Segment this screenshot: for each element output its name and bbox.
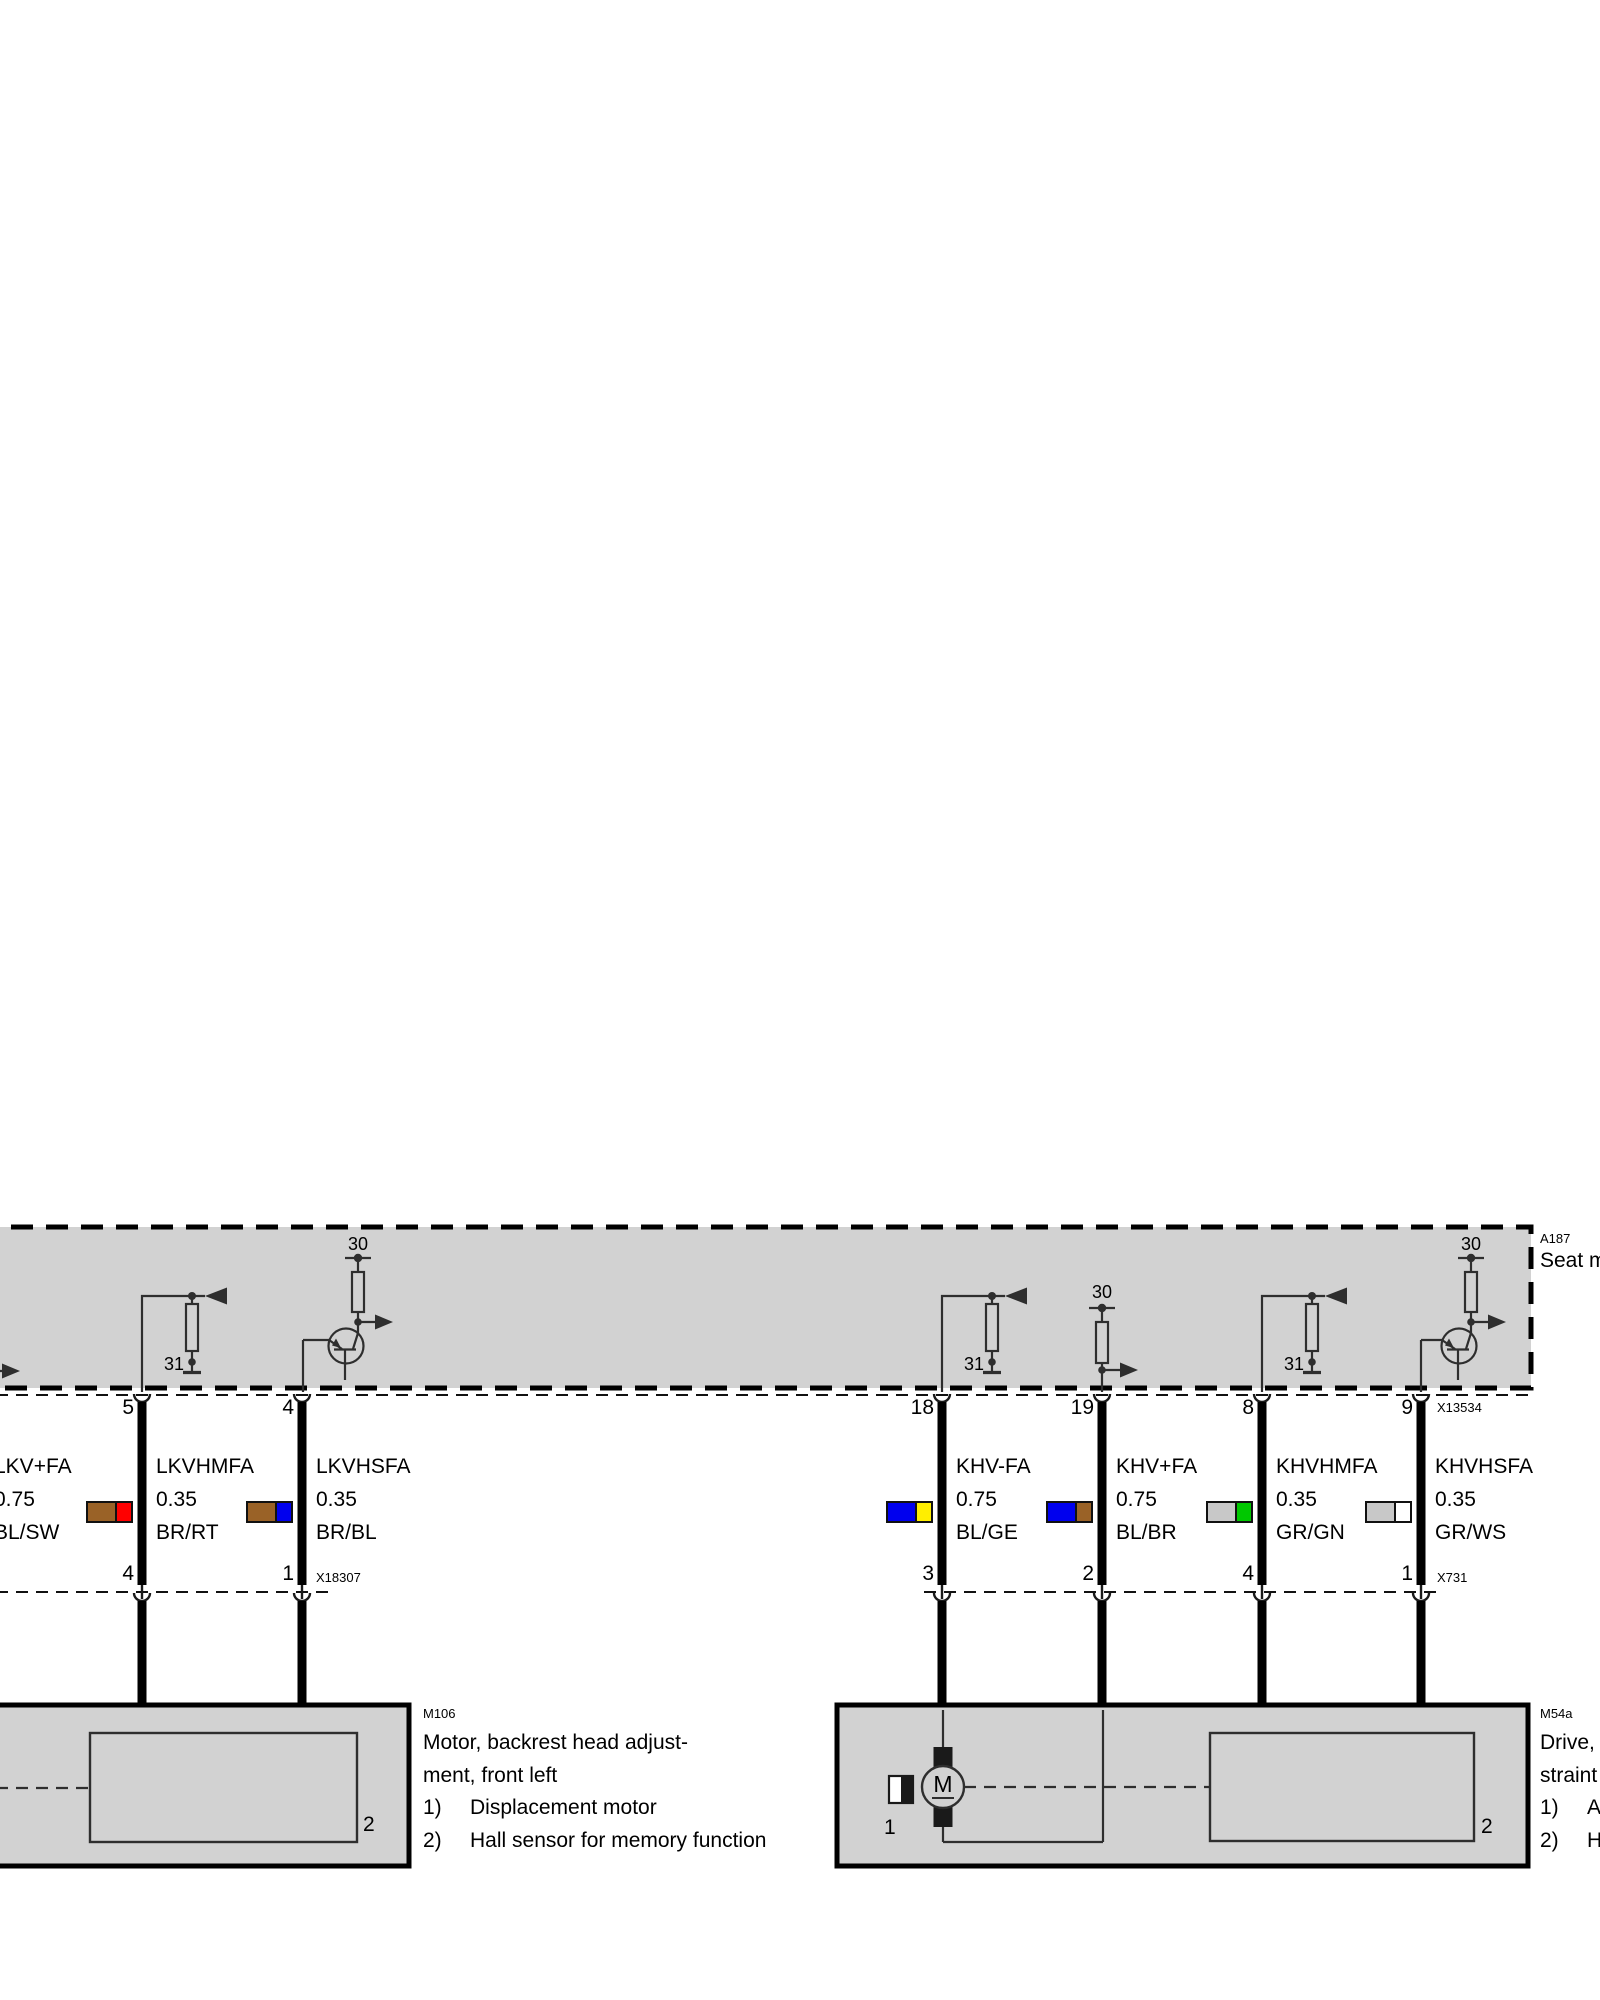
diagram-linework (0, 0, 1600, 2000)
module-code: A187 (1540, 1231, 1570, 1246)
pin-number-top: 18 (892, 1396, 934, 1420)
m54a-item-1: 1)Ad (1540, 1792, 1600, 1825)
m106-item-1: 1)Displacement motor (423, 1792, 766, 1825)
wire-label-khvhmfa: KHVHMFA 0.35 GR/GN (1276, 1450, 1378, 1549)
pin-number-bottom: 3 (892, 1562, 934, 1586)
m54a-motor-number: 1 (884, 1816, 896, 1840)
motor-letter: M (932, 1772, 954, 1799)
terminal30-label: 30 (336, 1234, 380, 1255)
pin-number-bottom: 1 (1371, 1562, 1413, 1586)
m106-box (0, 1705, 409, 1866)
m54a-description: Drive, straint 1)Ad 2)Ha (1540, 1727, 1600, 1857)
m54a-code: M54a (1540, 1706, 1573, 1721)
pin-number-bottom: 4 (1212, 1562, 1254, 1586)
pin-number-top: 5 (92, 1396, 134, 1420)
m106-code: M106 (423, 1706, 456, 1721)
connector-x18307-label: X18307 (316, 1570, 361, 1585)
wire-color-swatch (1046, 1501, 1093, 1523)
wire-color-swatch (86, 1501, 133, 1523)
wire-label-lkvhsfa: LKVHSFA 0.35 BR/BL (316, 1450, 411, 1549)
wire-color-swatch (1206, 1501, 1253, 1523)
terminal31-label: 31 (1276, 1354, 1304, 1375)
wire-color-swatch (1365, 1501, 1412, 1523)
connector-x731-label: X731 (1437, 1570, 1467, 1585)
harness-wires (142, 1402, 1421, 1710)
suppressor-symbol (889, 1776, 913, 1803)
pin-number-top: 9 (1371, 1396, 1413, 1420)
wire-color-swatch (886, 1501, 933, 1523)
m106-hall-sensor-number: 2 (363, 1813, 375, 1837)
m106-description: Motor, backrest head adjust- ment, front… (423, 1727, 766, 1857)
pin-number-bottom: 4 (92, 1562, 134, 1586)
m54a-hall-sensor-number: 2 (1481, 1815, 1493, 1839)
wire-color-swatch (246, 1501, 293, 1523)
terminal30-label: 30 (1449, 1234, 1493, 1255)
terminal31-label: 31 (156, 1354, 184, 1375)
terminal30-label: 30 (1080, 1282, 1124, 1303)
terminal31-label: 31 (956, 1354, 984, 1375)
m54a-item-2: 2)Ha (1540, 1825, 1600, 1858)
wire-label-khvhsfa: KHVHSFA 0.35 GR/WS (1435, 1450, 1533, 1549)
wire-label-khv-minus-fa: KHV-FA 0.75 BL/GE (956, 1450, 1031, 1549)
pin-number-top: 19 (1052, 1396, 1094, 1420)
pin-number-top: 4 (252, 1396, 294, 1420)
pin-number-bottom: 1 (252, 1562, 294, 1586)
pin-number-bottom: 2 (1052, 1562, 1094, 1586)
pin-number-top: 8 (1212, 1396, 1254, 1420)
wire-label-lkvhmfa: LKVHMFA 0.35 BR/RT (156, 1450, 254, 1549)
module-name: Seat m (1540, 1249, 1600, 1273)
wire-label-lkv-plus-fa: LKV+FA 0.75 BL/SW (0, 1450, 72, 1549)
connector-x13534-label: X13534 (1437, 1400, 1482, 1415)
m106-item-2: 2)Hall sensor for memory function (423, 1825, 766, 1858)
wiring-diagram-page: A187 Seat m 30 30 30 31 31 31 5 4 18 19 … (0, 0, 1600, 2000)
wire-label-khv-plus-fa: KHV+FA 0.75 BL/BR (1116, 1450, 1197, 1549)
